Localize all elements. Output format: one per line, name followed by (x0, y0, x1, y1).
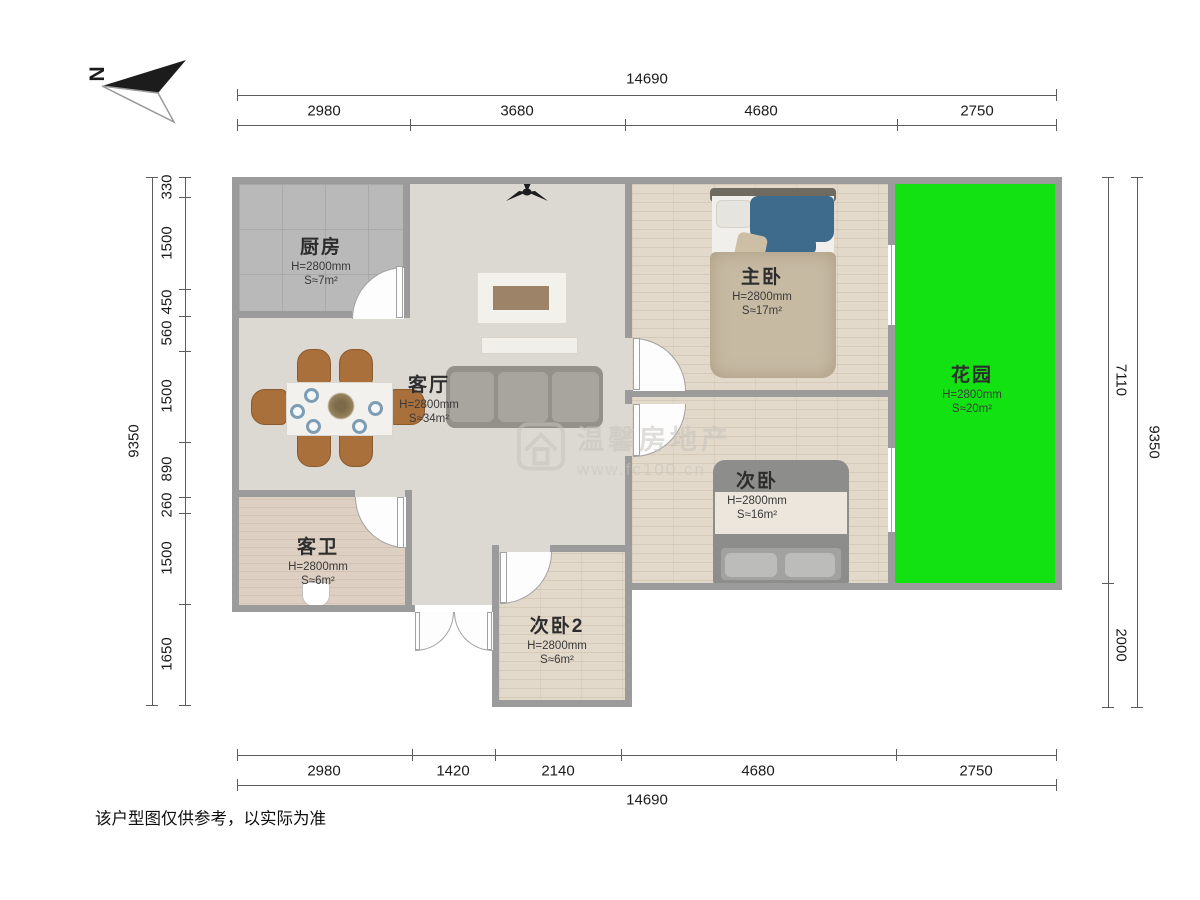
room-name: 客厅 (399, 370, 459, 397)
wall (625, 177, 632, 338)
dim-tick (179, 442, 191, 443)
dim-top-seg: 2750 (960, 103, 993, 120)
bed-pillow (785, 553, 835, 577)
dim-bottom-seg: 2980 (307, 763, 340, 780)
dim-tick (1102, 583, 1114, 584)
dining-chair (339, 349, 373, 385)
dim-right-total: 9350 (1146, 425, 1163, 458)
sofa-cushion (498, 372, 548, 422)
dim-tick (1056, 89, 1057, 101)
room-area: S≈16m² (727, 509, 787, 521)
dim-tick (412, 749, 413, 761)
watermark-url: www.fc100.cn (577, 460, 732, 480)
dim-bottom-seg: 2750 (959, 763, 992, 780)
window (888, 245, 895, 325)
room-label-master: 主卧 H=2800mm S≈17m² (732, 262, 792, 317)
wall (232, 177, 239, 612)
dim-tick (1102, 177, 1114, 178)
dim-left-seg: 560 (159, 320, 176, 345)
wall (625, 583, 1062, 590)
wall (1055, 177, 1062, 590)
dim-tick (179, 705, 191, 706)
dim-line (152, 177, 153, 705)
table-centerpiece (327, 392, 355, 420)
bed-pillow (725, 553, 777, 577)
bedroom2-door-leaf (500, 552, 507, 603)
dim-tick (1102, 707, 1114, 708)
disclaimer-text: 该户型图仅供参考，以实际为准 (95, 805, 326, 829)
room-name: 厨房 (291, 232, 351, 259)
dim-left-seg: 450 (159, 289, 176, 314)
dim-line (185, 177, 186, 705)
dim-tick (179, 177, 191, 178)
dim-line (1108, 177, 1109, 707)
dim-tick (146, 705, 158, 706)
tv-rug (477, 272, 567, 324)
wall (625, 456, 632, 707)
dining-chair (297, 349, 331, 385)
dim-line (1137, 177, 1138, 707)
wall (232, 490, 355, 497)
room-label-kitchen: 厨房 H=2800mm S≈7m² (291, 232, 351, 287)
room-height: H=2800mm (288, 561, 348, 573)
dim-line (237, 95, 1057, 96)
dim-left-seg: 330 (159, 174, 176, 199)
dim-bottom-seg: 2140 (541, 763, 574, 780)
dim-top-total: 14690 (626, 71, 668, 88)
dim-tick (1056, 749, 1057, 761)
master-door-leaf (633, 338, 640, 390)
window (888, 448, 895, 532)
dim-tick (1056, 119, 1057, 131)
watermark-brand: 温馨房地产 (577, 418, 732, 457)
plate (368, 401, 383, 416)
dim-bottom-total: 14690 (626, 792, 668, 809)
room-label-living: 客厅 H=2800mm S≈34m² (399, 370, 459, 425)
dim-right-seg: 2000 (1113, 628, 1130, 661)
dining-chair (251, 389, 287, 425)
wall (632, 390, 888, 397)
dim-tick (897, 119, 898, 131)
tv-cabinet (493, 286, 549, 310)
bathroom-door-leaf (397, 497, 404, 548)
dim-tick (621, 749, 622, 761)
room-height: H=2800mm (732, 291, 792, 303)
wall (403, 177, 410, 318)
dim-left-seg: 1650 (159, 637, 176, 670)
floorplan-canvas: N 14690 2980 3680 4680 2750 2980 1420 21… (0, 0, 1200, 900)
wall (405, 490, 412, 612)
plate (306, 419, 321, 434)
room-area: S≈6m² (527, 654, 587, 666)
room-height: H=2800mm (727, 495, 787, 507)
dim-tick (410, 119, 411, 131)
dim-tick (179, 604, 191, 605)
room-name: 次卧 (727, 466, 787, 493)
entry-door-leaf-left (415, 612, 420, 650)
kitchen-door-leaf (396, 266, 403, 318)
dim-bottom-seg: 4680 (741, 763, 774, 780)
entry-door-arc-left (415, 612, 454, 651)
dim-bottom-seg: 1420 (436, 763, 469, 780)
dim-tick (179, 351, 191, 352)
bed-pillow (716, 200, 752, 228)
dim-left-seg: 260 (159, 492, 176, 517)
dim-left-seg: 1500 (159, 226, 176, 259)
room-area: S≈6m² (288, 575, 348, 587)
dim-tick (1131, 707, 1143, 708)
blue-blanket (750, 196, 834, 242)
dim-left-seg: 1500 (159, 541, 176, 574)
wall (492, 700, 632, 707)
room-area: S≈20m² (942, 403, 1002, 415)
wall (550, 545, 632, 552)
plate (304, 388, 319, 403)
north-arrow-icon (82, 46, 202, 126)
dim-tick (1056, 779, 1057, 791)
dim-top-seg: 4680 (744, 103, 777, 120)
room-height: H=2800mm (527, 640, 587, 652)
dim-left-seg: 1500 (159, 379, 176, 412)
room-height: H=2800mm (399, 399, 459, 411)
room-name: 客卫 (288, 532, 348, 559)
room-height: H=2800mm (291, 261, 351, 273)
plate (290, 404, 305, 419)
dim-tick (625, 119, 626, 131)
dim-line (237, 785, 1057, 786)
wall (232, 177, 1062, 184)
dim-line (237, 125, 1057, 126)
entry-door-leaf-right (487, 612, 492, 650)
dim-left-total: 9350 (126, 424, 143, 457)
wall (888, 325, 895, 448)
dining-chair (339, 431, 373, 467)
dim-top-seg: 2980 (307, 103, 340, 120)
dim-tick (1131, 177, 1143, 178)
wall (492, 545, 499, 707)
room-label-second: 次卧 H=2800mm S≈16m² (727, 466, 787, 521)
dim-tick (237, 89, 238, 101)
dim-line (237, 755, 1057, 756)
room-area: S≈34m² (399, 413, 459, 425)
room-label-bath: 客卫 H=2800mm S≈6m² (288, 532, 348, 587)
dim-tick (896, 749, 897, 761)
room-name: 花园 (942, 360, 1002, 387)
wall (625, 390, 632, 404)
dim-tick (237, 749, 238, 761)
dim-right-seg: 7110 (1113, 364, 1130, 396)
dim-tick (495, 749, 496, 761)
house-logo-icon (515, 420, 567, 478)
room-name: 次卧2 (527, 611, 587, 638)
wall (232, 311, 352, 318)
room-label-second2: 次卧2 H=2800mm S≈6m² (527, 611, 587, 666)
plate (352, 419, 367, 434)
wall (232, 605, 415, 612)
hall-cabinet (481, 337, 578, 354)
dim-tick (179, 316, 191, 317)
room-label-garden: 花园 H=2800mm S≈20m² (942, 360, 1002, 415)
dim-tick (179, 197, 191, 198)
dim-tick (237, 119, 238, 131)
dim-tick (179, 497, 191, 498)
watermark: 温馨房地产 www.fc100.cn (515, 418, 732, 480)
wall (888, 177, 895, 245)
room-height: H=2800mm (942, 389, 1002, 401)
dining-chair (297, 431, 331, 467)
dim-top-seg: 3680 (500, 103, 533, 120)
dim-tick (146, 177, 158, 178)
room-area: S≈17m² (732, 305, 792, 317)
sofa-cushion (552, 372, 599, 422)
wall (888, 532, 895, 590)
dim-left-seg: 890 (159, 456, 176, 481)
dim-tick (237, 779, 238, 791)
room-name: 主卧 (732, 262, 792, 289)
dim-tick (179, 513, 191, 514)
dim-tick (179, 289, 191, 290)
room-area: S≈7m² (291, 275, 351, 287)
